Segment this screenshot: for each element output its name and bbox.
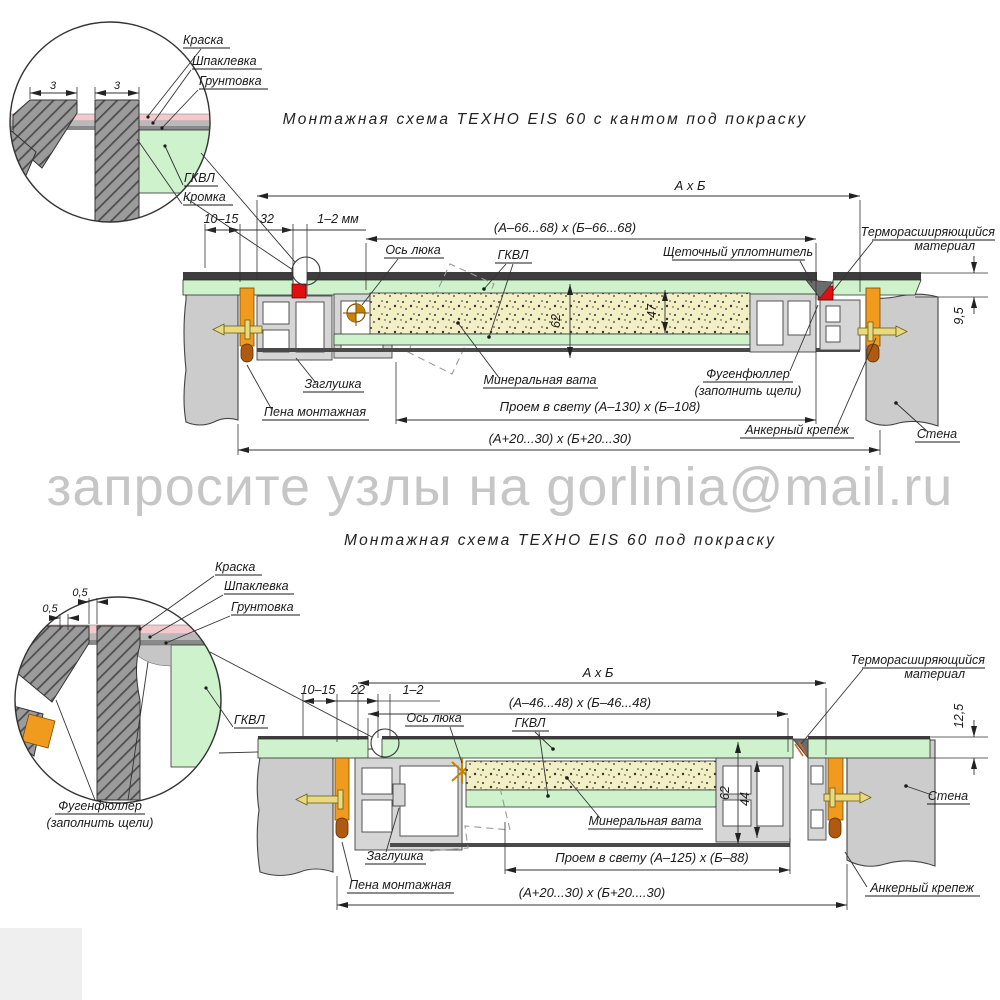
- label-wall-bottom: Стена: [928, 789, 968, 803]
- label-gkvl-detail: ГКВЛ: [184, 171, 215, 185]
- top-title: Монтажная схема ТЕХНО EIS 60 с кантом по…: [283, 111, 808, 128]
- plug-box: [393, 784, 405, 806]
- mineral-wool-b: [466, 761, 716, 790]
- label-thermo-1-top: Терморасширяющийся: [861, 225, 996, 239]
- dim-offset-bottom: 22: [350, 683, 365, 697]
- label-wall-top: Стена: [917, 427, 957, 441]
- detail-dim-2: 0,5: [42, 603, 58, 615]
- anchor-tip-left: [241, 344, 253, 362]
- anchor-tip-right: [867, 344, 879, 362]
- dim-wall-opening-bottom: (А+20...30) х (Б+20....30): [519, 885, 665, 900]
- bottom-section-drawing: А х Б (А–46...48) х (Б–46...48) 10–15 22…: [257, 653, 988, 910]
- corner-artifact: [0, 928, 82, 1000]
- detail-dim-left: 3: [50, 80, 57, 92]
- label-fugen-1-top: Фугенфюллер: [706, 367, 790, 381]
- thermo-material-joint: [793, 739, 808, 758]
- label-fugen-2-top: (заполнить щели): [695, 384, 802, 398]
- label-axis-bottom: Ось люка: [406, 711, 461, 725]
- dim-clear-opening-top: Проем в свету (А–130) х (Б–108): [500, 399, 701, 414]
- dim-wall-opening-top: (А+20...30) х (Б+20...30): [489, 431, 632, 446]
- label-plug-bottom: Заглушка: [366, 849, 423, 863]
- detail-dim-1: 0,5: [72, 587, 88, 599]
- edge-seal-left: [292, 284, 306, 298]
- label-anchor-bottom: Анкерный крепеж: [869, 881, 975, 895]
- callout-circle-top: [292, 257, 320, 285]
- dim-overall-top: А х Б: [674, 178, 706, 193]
- dim-depth-top: 62: [549, 314, 563, 328]
- label-paint: Краска: [183, 33, 223, 47]
- left-wall-b: [257, 740, 333, 876]
- label-edge: Кромка: [183, 190, 226, 204]
- dim-board-top: 9,5: [952, 307, 966, 324]
- ceiling-finish-mid: [307, 272, 817, 280]
- label-thermo-2-bottom: материал: [904, 667, 965, 681]
- label-wool-bottom: Минеральная вата: [589, 814, 702, 828]
- gkvl-mid-b: [382, 739, 793, 758]
- gkvl-left-b: [258, 739, 368, 758]
- leaf-gkvl-lower: [334, 334, 750, 345]
- ceiling-finish-left: [183, 272, 293, 280]
- gkvl-left: [183, 280, 293, 295]
- left-wall: [184, 278, 238, 425]
- drawing-page: Монтажная схема ТЕХНО EIS 60 с кантом по…: [0, 0, 1000, 1000]
- detail-dim-right: 3: [114, 80, 121, 92]
- label-thermo-2-top: материал: [914, 239, 975, 253]
- frame-section-center-b: [97, 626, 140, 800]
- label-fugen-1-b: Фугенфюллер: [58, 799, 142, 813]
- label-primer: Грунтовка: [199, 74, 262, 88]
- dim-leaf-bottom: (А–46...48) х (Б–46...48): [509, 695, 651, 710]
- label-gkvl-top: ГКВЛ: [498, 248, 529, 262]
- dim-offset-top: 32: [260, 212, 274, 226]
- dim-depth-bottom: 62: [718, 786, 732, 800]
- gkvl-board-b: [171, 645, 235, 767]
- anchor-tip-left-b: [336, 818, 348, 838]
- label-putty: Шпаклевка: [192, 54, 257, 68]
- frame-section-center: [95, 100, 139, 224]
- dim-overall-bottom: А х Б: [582, 665, 614, 680]
- label-paint-b: Краска: [215, 560, 255, 574]
- label-anchor-top: Анкерный крепеж: [744, 423, 850, 437]
- anchor-tip-right-b: [829, 818, 841, 838]
- top-section-drawing: А х Б (А–66...68) х (Б–66...68) 10–15 32…: [183, 178, 995, 455]
- watermark-text: запросите узлы на gorlinia@mail.ru: [47, 457, 954, 517]
- dim-joint-bottom: 1–2: [403, 683, 424, 697]
- installation-drawing: Монтажная схема ТЕХНО EIS 60 с кантом по…: [0, 0, 1000, 1000]
- label-brush-seal: Щеточный уплотнитель: [663, 245, 813, 259]
- dim-leaf-top: (А–66...68) х (Б–66...68): [494, 220, 636, 235]
- dim-board-bottom: 12,5: [952, 704, 966, 728]
- bottom-title: Монтажная схема ТЕХНО EIS 60 под покраск…: [344, 532, 776, 549]
- top-detail-circle: 3 3 Краска Шпаклевка Грунтовка ГКВЛ Кром…: [4, 22, 295, 270]
- label-primer-b: Грунтовка: [231, 600, 294, 614]
- label-gkvl-bottom: ГКВЛ: [515, 716, 546, 730]
- label-axis-top: Ось люка: [385, 243, 440, 257]
- frame-section-left-b: [16, 626, 89, 702]
- ceiling-finish-right: [833, 272, 921, 280]
- dim-joint-top: 1–2 мм: [317, 212, 359, 226]
- label-putty-b: Шпаклевка: [224, 579, 289, 593]
- dim-clear-opening-bottom: Проем в свету (А–125) х (Б–88): [555, 850, 748, 865]
- leaf-bottom-edge-b: [390, 843, 790, 847]
- label-fugen-2-b: (заполнить щели): [47, 816, 154, 830]
- anchor-plate-left-b: [335, 758, 349, 820]
- dim-gap-wall-bottom: 10–15: [301, 683, 336, 697]
- label-gkvl-detail-b: ГКВЛ: [234, 713, 265, 727]
- label-foam-bottom: Пена монтажная: [349, 878, 451, 892]
- dim-inner-depth-bottom: 44: [738, 792, 752, 806]
- label-thermo-1-bottom: Терморасширяющийся: [851, 653, 986, 667]
- label-wool-top: Минеральная вата: [484, 373, 597, 387]
- dim-gap-wall-top: 10–15: [204, 212, 239, 226]
- dim-wool-top: 47: [645, 303, 659, 318]
- label-foam-top: Пена монтажная: [264, 405, 366, 419]
